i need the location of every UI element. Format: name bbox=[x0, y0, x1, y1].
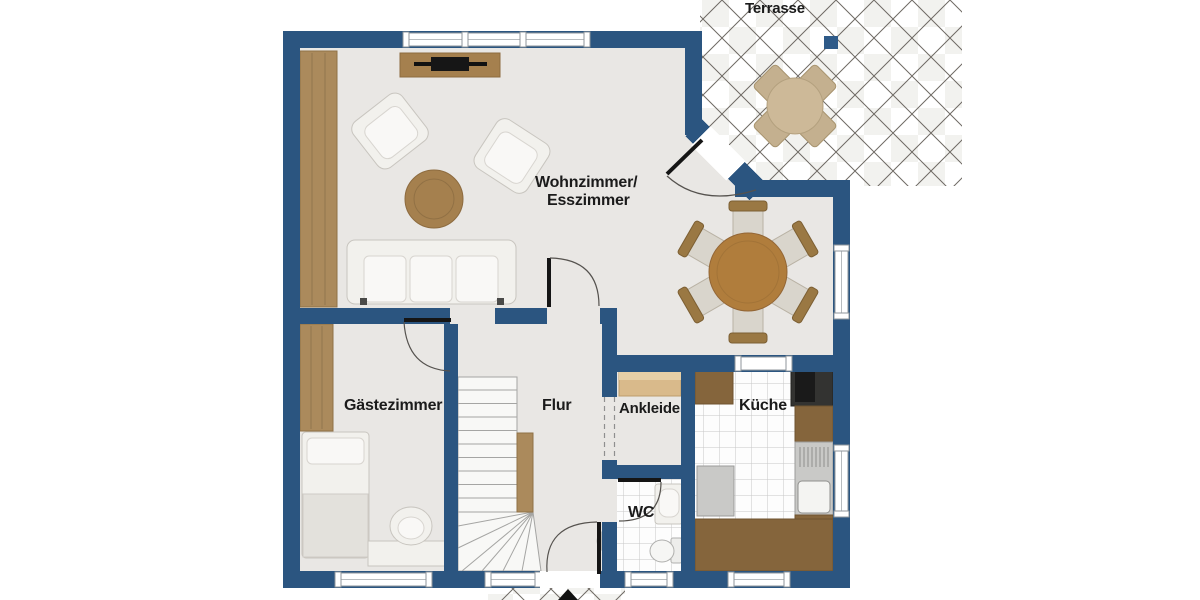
bed bbox=[302, 432, 369, 558]
wall-guest-hall bbox=[444, 308, 458, 571]
bed-blanket bbox=[303, 494, 368, 557]
room-label-esszimmer: Esszimmer bbox=[547, 192, 630, 209]
guest-wardrobe bbox=[300, 324, 333, 431]
room-label-wohnzimmer: Wohnzimmer/ bbox=[535, 174, 637, 191]
stove-top bbox=[795, 372, 815, 402]
tv-screen bbox=[431, 57, 469, 71]
desk-chair bbox=[390, 507, 432, 545]
bed-pillow bbox=[307, 438, 364, 464]
kitchen-sink bbox=[798, 481, 830, 513]
dining-chair-back bbox=[729, 201, 767, 211]
wc-sink-basin bbox=[659, 489, 679, 517]
kitchen-counter-bottom bbox=[695, 519, 833, 571]
wall-wc-kitchen bbox=[681, 368, 695, 571]
room-label-wc: WC bbox=[628, 504, 654, 521]
window-hall-bottom bbox=[485, 572, 541, 587]
floor-plan-drawing bbox=[0, 0, 1200, 600]
toilet bbox=[650, 538, 682, 563]
room-label-gaestezimmer: Gästezimmer bbox=[344, 397, 442, 414]
sofa-foot bbox=[360, 298, 367, 305]
dressing-room-opening bbox=[602, 397, 617, 460]
wall-return bbox=[685, 31, 702, 135]
pass-through-dining-kitchen bbox=[735, 356, 792, 371]
sofa-foot bbox=[497, 298, 504, 305]
entry-porch bbox=[488, 588, 625, 600]
wall-bay-top bbox=[735, 180, 850, 197]
fridge bbox=[697, 466, 734, 516]
floor-plan: Terrasse Wohnzimmer/ Esszimmer Gästezimm… bbox=[0, 0, 1200, 600]
kitchen-counter-right-upper bbox=[795, 406, 833, 442]
window-guest-bottom bbox=[335, 572, 432, 587]
porch-lattice bbox=[488, 588, 625, 600]
window-kitchen-right bbox=[834, 445, 849, 517]
living-wardrobe bbox=[300, 51, 337, 307]
wall-left bbox=[283, 31, 300, 588]
dining-chair-back bbox=[729, 333, 767, 343]
room-label-terrasse: Terrasse bbox=[745, 0, 805, 17]
wall-dining-kitchen bbox=[617, 355, 850, 372]
kitchen-counter-topleft bbox=[695, 368, 733, 404]
dressing-room-fittings bbox=[619, 370, 681, 396]
terrace-table bbox=[767, 78, 823, 134]
window-dining-right bbox=[834, 245, 849, 319]
terrace-accent-square bbox=[824, 36, 838, 49]
stair-rail bbox=[517, 433, 533, 512]
wall-right bbox=[833, 180, 850, 588]
dining-table bbox=[709, 233, 787, 311]
window-kitchen-bottom bbox=[728, 572, 790, 587]
window-wc-bottom bbox=[625, 572, 673, 587]
room-label-flur: Flur bbox=[542, 397, 571, 414]
room-label-kueche: Küche bbox=[739, 397, 787, 414]
sink-unit bbox=[795, 442, 833, 515]
sofa bbox=[347, 240, 516, 305]
window-living-top bbox=[403, 32, 590, 47]
room-label-ankleide: Ankleide bbox=[619, 400, 680, 417]
